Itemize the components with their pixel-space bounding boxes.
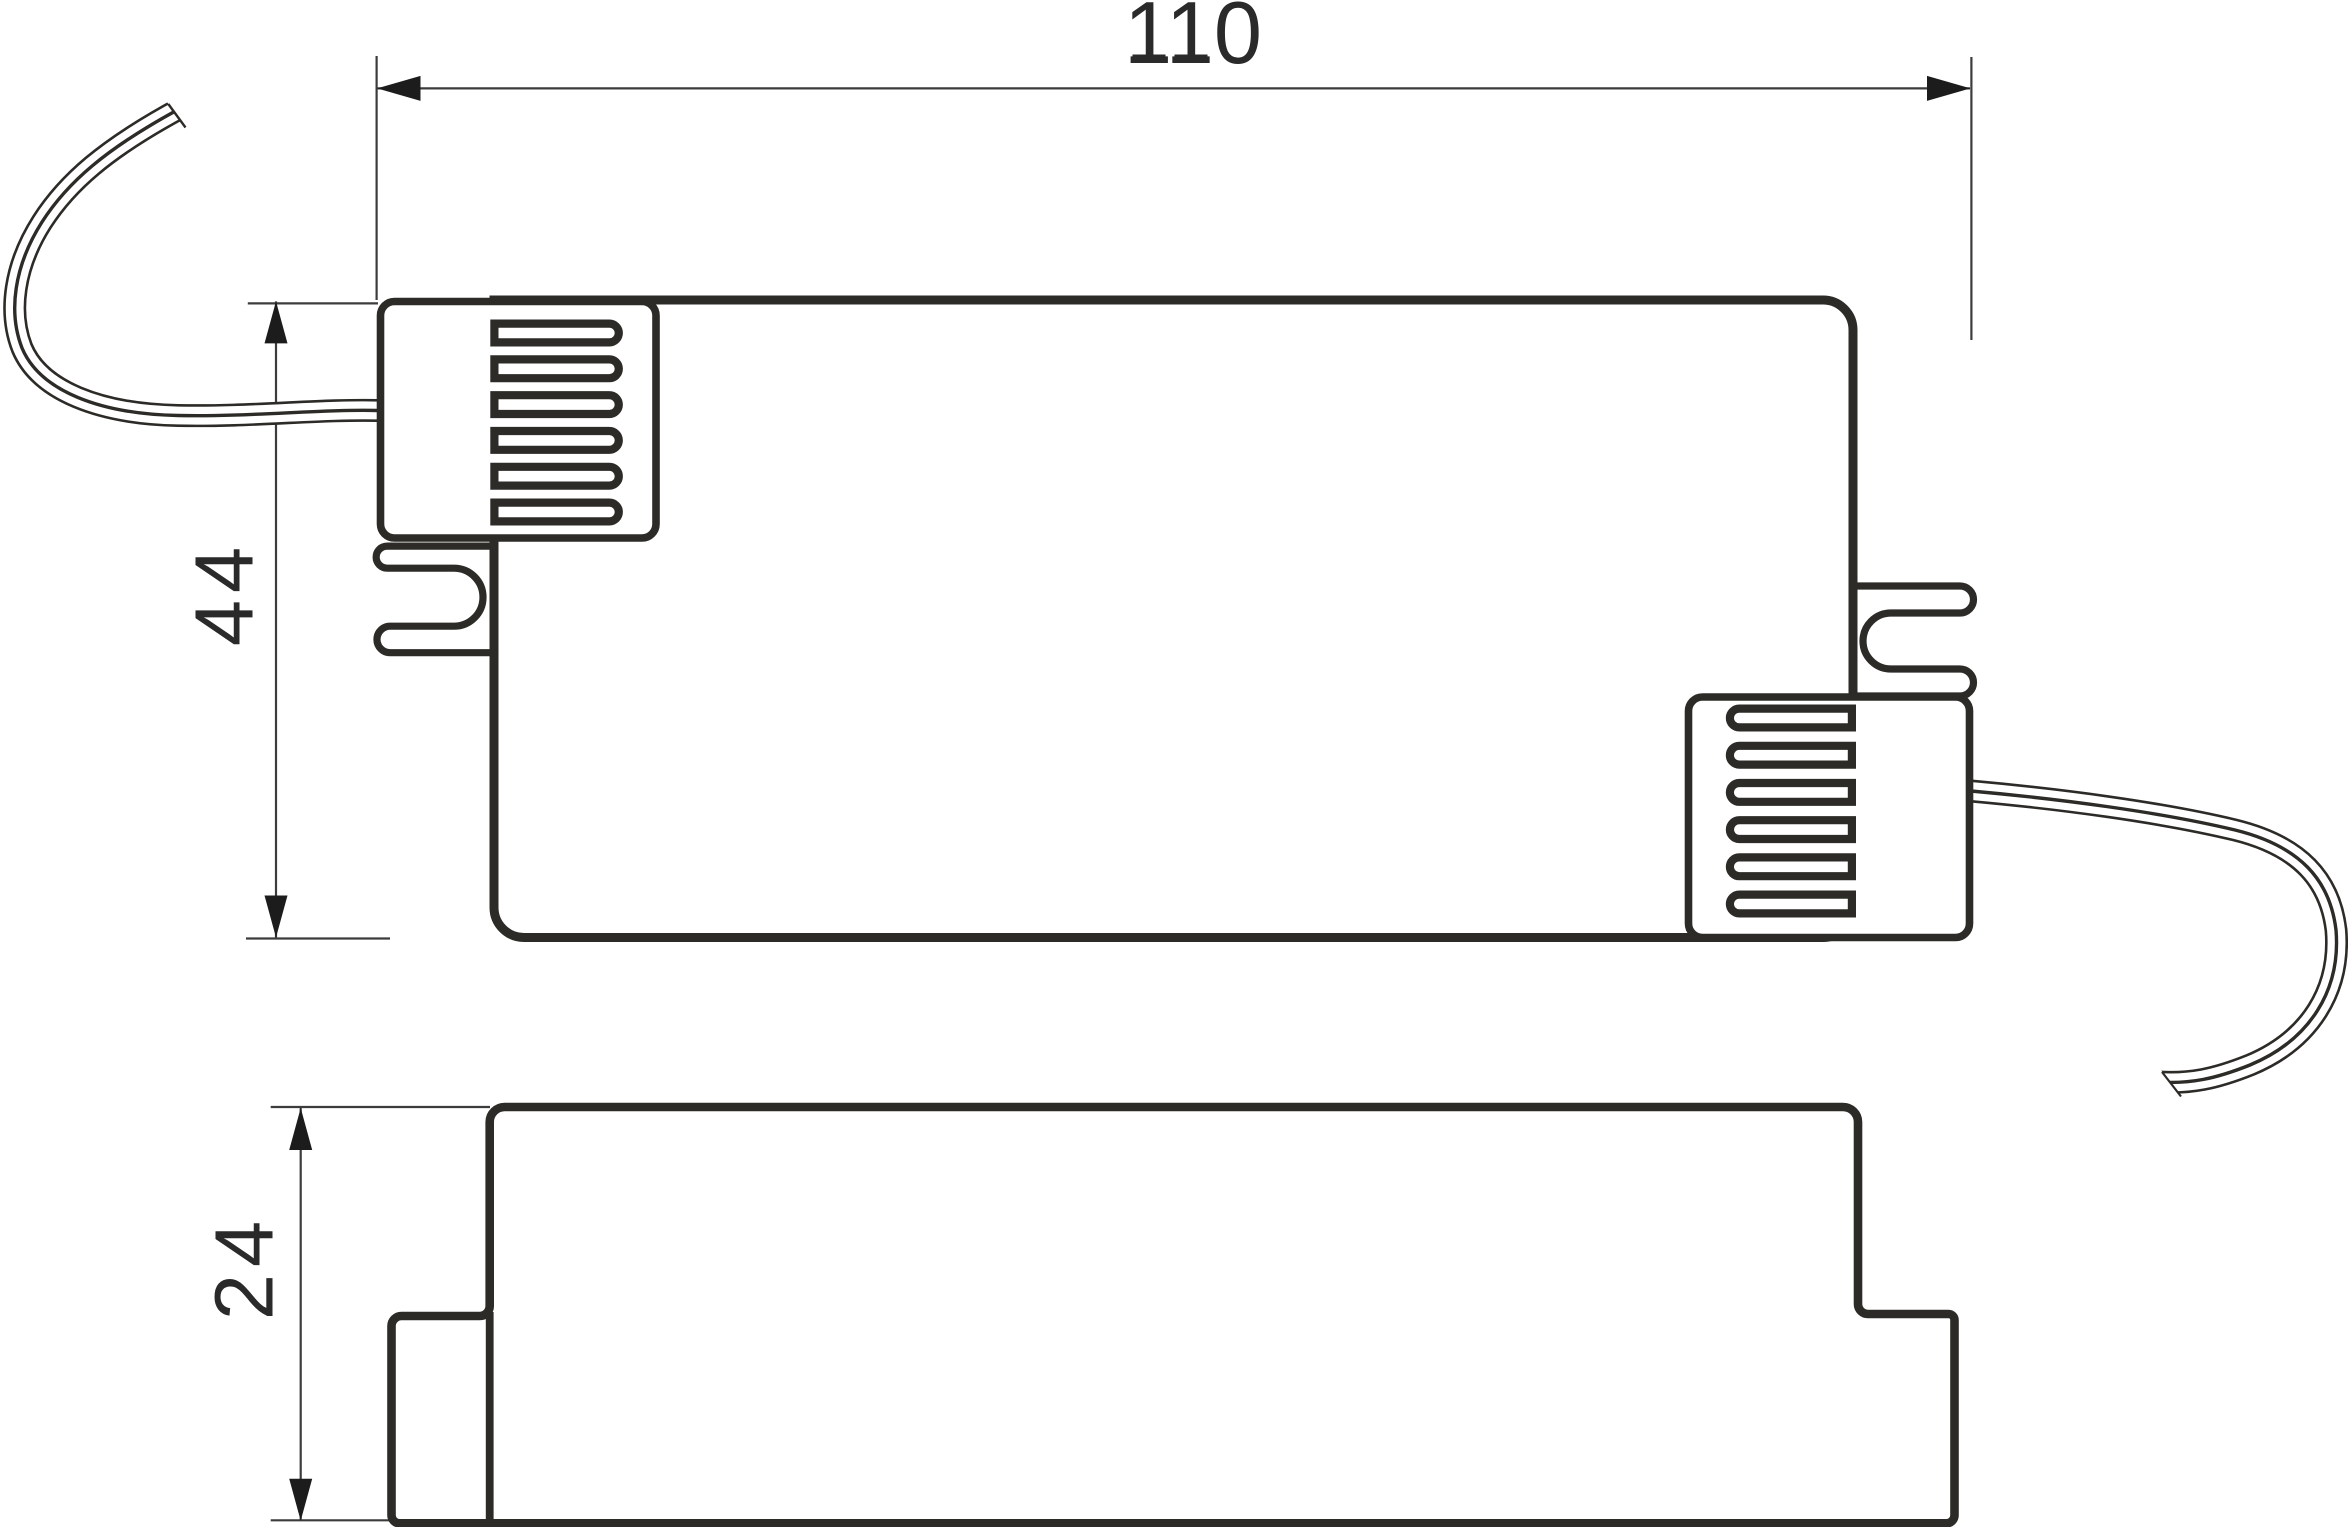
svg-text:44: 44 [178, 540, 271, 646]
svg-text:110: 110 [1124, 0, 1262, 82]
svg-text:24: 24 [198, 1214, 291, 1320]
